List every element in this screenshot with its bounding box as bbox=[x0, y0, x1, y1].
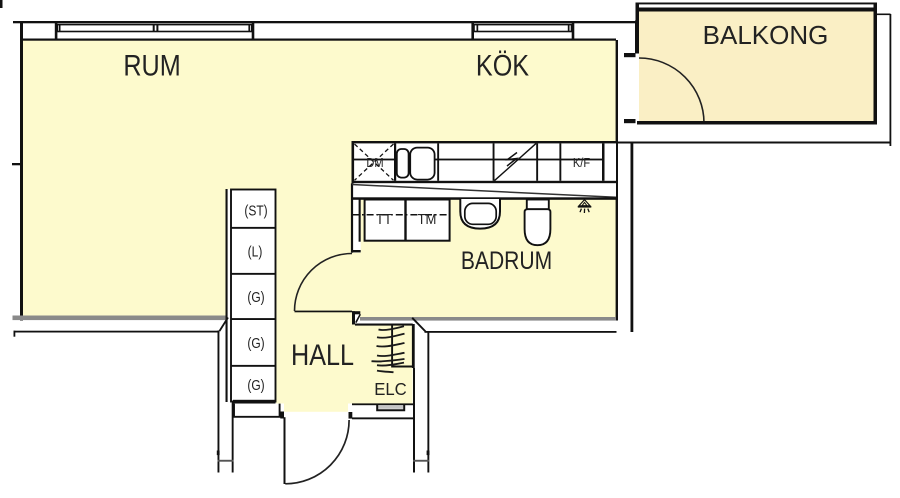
svg-text:(G): (G) bbox=[247, 289, 264, 306]
svg-text:TM: TM bbox=[418, 212, 437, 228]
svg-text:BADRUM: BADRUM bbox=[461, 246, 552, 274]
svg-text:HALL: HALL bbox=[291, 338, 354, 372]
svg-text:BALKONG: BALKONG bbox=[703, 20, 829, 50]
svg-text:RUM: RUM bbox=[123, 48, 180, 82]
svg-text:K/F: K/F bbox=[573, 155, 590, 170]
svg-text:KÖK: KÖK bbox=[476, 48, 530, 82]
svg-text:(ST): (ST) bbox=[244, 202, 267, 219]
svg-text:(L): (L) bbox=[248, 243, 263, 260]
svg-text:(G): (G) bbox=[247, 335, 264, 352]
svg-text:ELC: ELC bbox=[374, 379, 407, 400]
svg-text:(G): (G) bbox=[247, 377, 264, 394]
svg-text:DM: DM bbox=[366, 155, 383, 170]
svg-text:TT: TT bbox=[376, 211, 392, 227]
